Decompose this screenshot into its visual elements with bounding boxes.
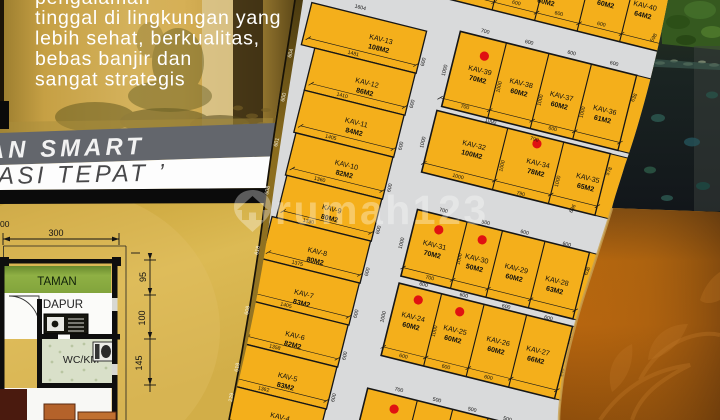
svg-text:145: 145: [134, 355, 144, 370]
svg-text:95: 95: [138, 272, 148, 282]
svg-text:tinggal di lingkungan yang: tinggal di lingkungan yang: [35, 7, 281, 29]
svg-text:DAPUR: DAPUR: [43, 299, 83, 311]
svg-text:sangat strategis: sangat strategis: [35, 69, 185, 91]
svg-text:rumah123: rumah123: [275, 187, 489, 233]
svg-text:300: 300: [48, 228, 63, 238]
svg-text:100: 100: [137, 310, 147, 325]
svg-text:bebas banjir dan: bebas banjir dan: [35, 48, 192, 70]
svg-text:TAMAN: TAMAN: [37, 276, 76, 288]
svg-text:ASI TEPAT ’: ASI TEPAT ’: [0, 159, 168, 190]
svg-text:00: 00: [0, 219, 10, 229]
svg-text:lebih sehat, berkualitas,: lebih sehat, berkualitas,: [35, 28, 260, 50]
